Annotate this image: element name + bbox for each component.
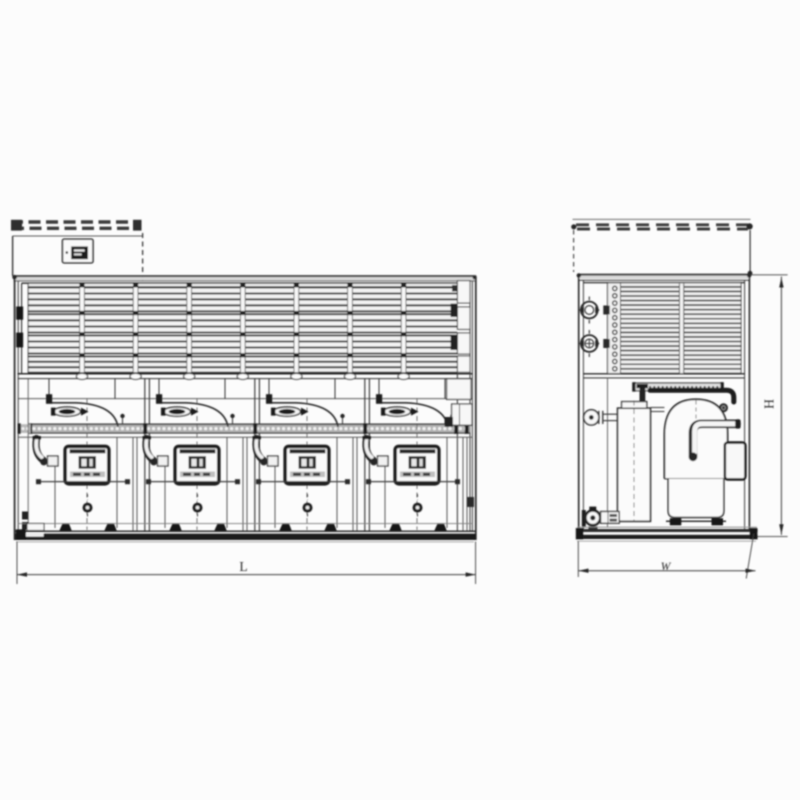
svg-text:L: L — [239, 559, 247, 574]
svg-text:H: H — [762, 399, 777, 409]
svg-text:W: W — [661, 561, 672, 573]
